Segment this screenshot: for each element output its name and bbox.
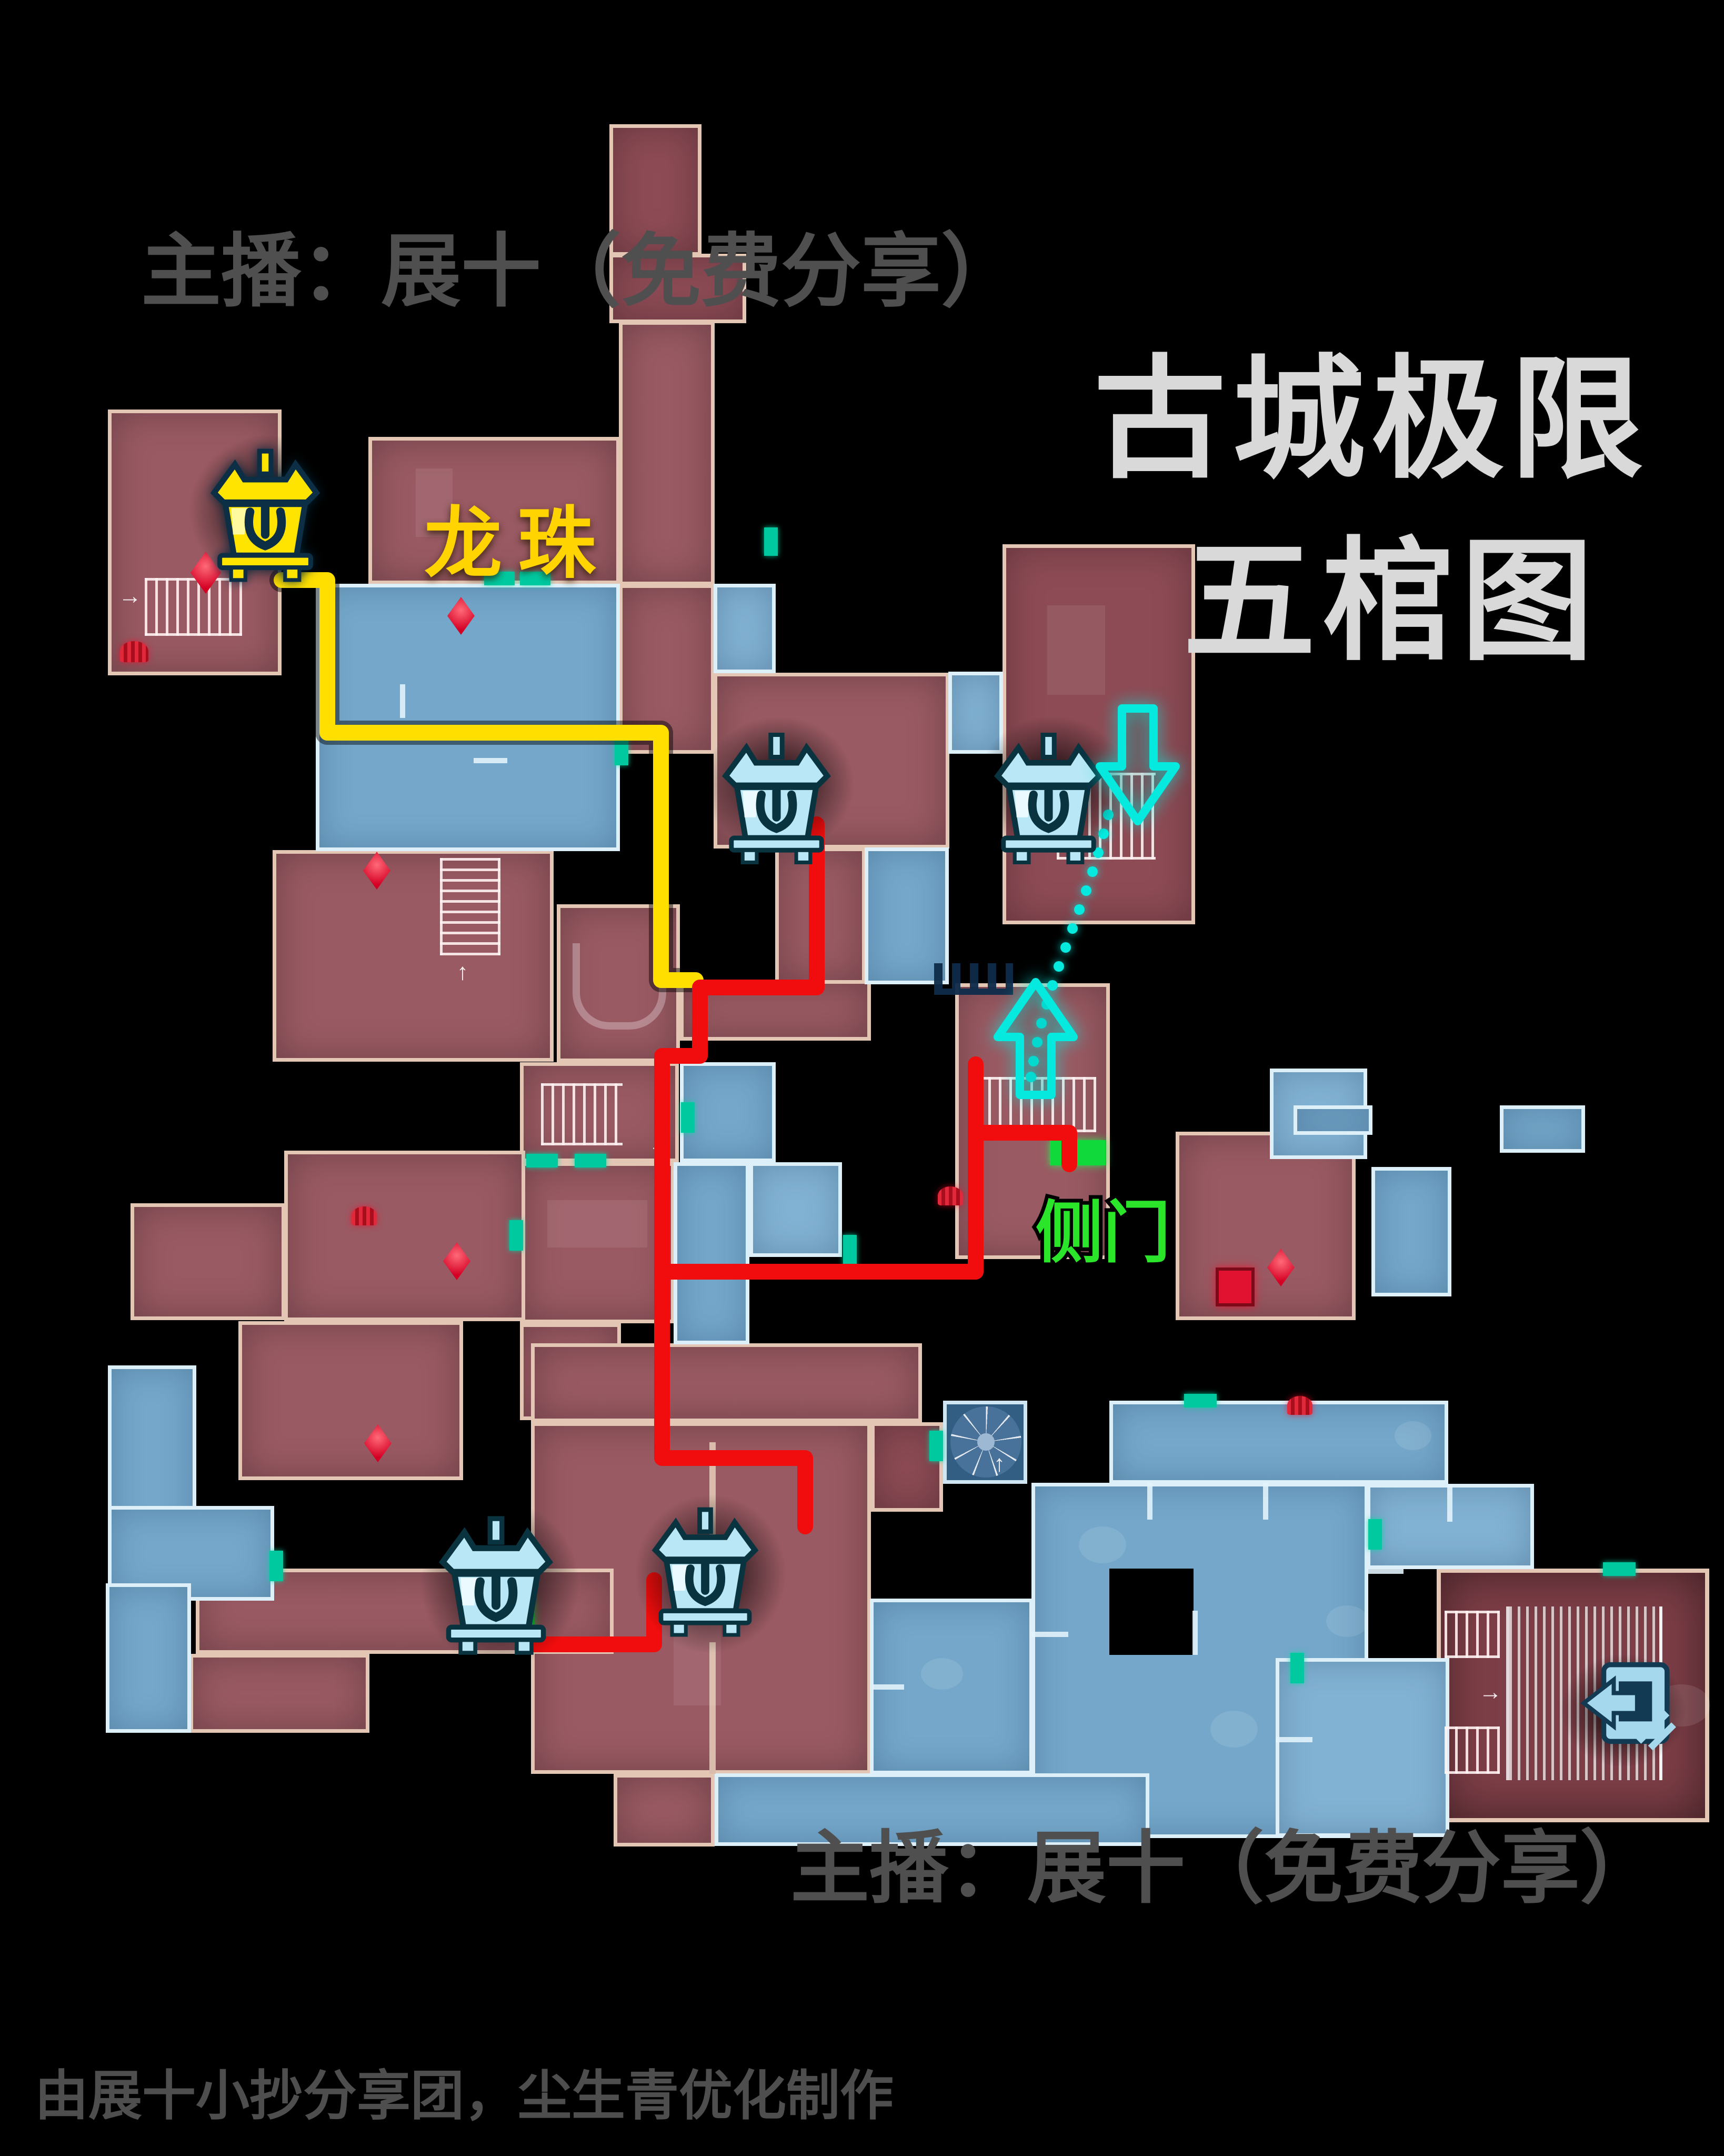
map-title-line2: 五棺图 — [1183, 494, 1600, 686]
bottom-watermark: 主播：展十（免费分享） — [790, 1804, 1659, 1919]
top-watermark: 主播：展十（免费分享） — [141, 206, 1021, 322]
map-title-line1: 古城极限 — [1094, 312, 1649, 504]
coffin-cyan-icon — [992, 733, 1105, 864]
dragon-pearl-label: 龙珠 — [424, 480, 612, 593]
arrow-up-icon — [994, 978, 1078, 1099]
map-guide-page: { "header": { "streamer_label": "主播：展十（免… — [0, 0, 1724, 2156]
route-red-sidedoor — [662, 1064, 976, 1272]
arrow-down-icon — [1096, 704, 1180, 825]
credit-line: 由展十小抄分享团，尘生青优化制作 — [35, 2053, 894, 2130]
route-red-main — [662, 824, 817, 1526]
side-door-label: 侧门 — [1036, 1178, 1170, 1275]
coffin-cyan-icon — [720, 733, 833, 864]
route-yellow — [282, 580, 696, 980]
coffin-cyan-icon — [650, 1503, 760, 1641]
exit-door-icon — [1579, 1658, 1679, 1758]
route-yellow-shadow — [282, 580, 696, 980]
coffin-yellow-icon — [208, 448, 322, 583]
route-red-door-stub — [976, 1133, 1069, 1164]
coffin-cyan-icon — [437, 1516, 555, 1655]
